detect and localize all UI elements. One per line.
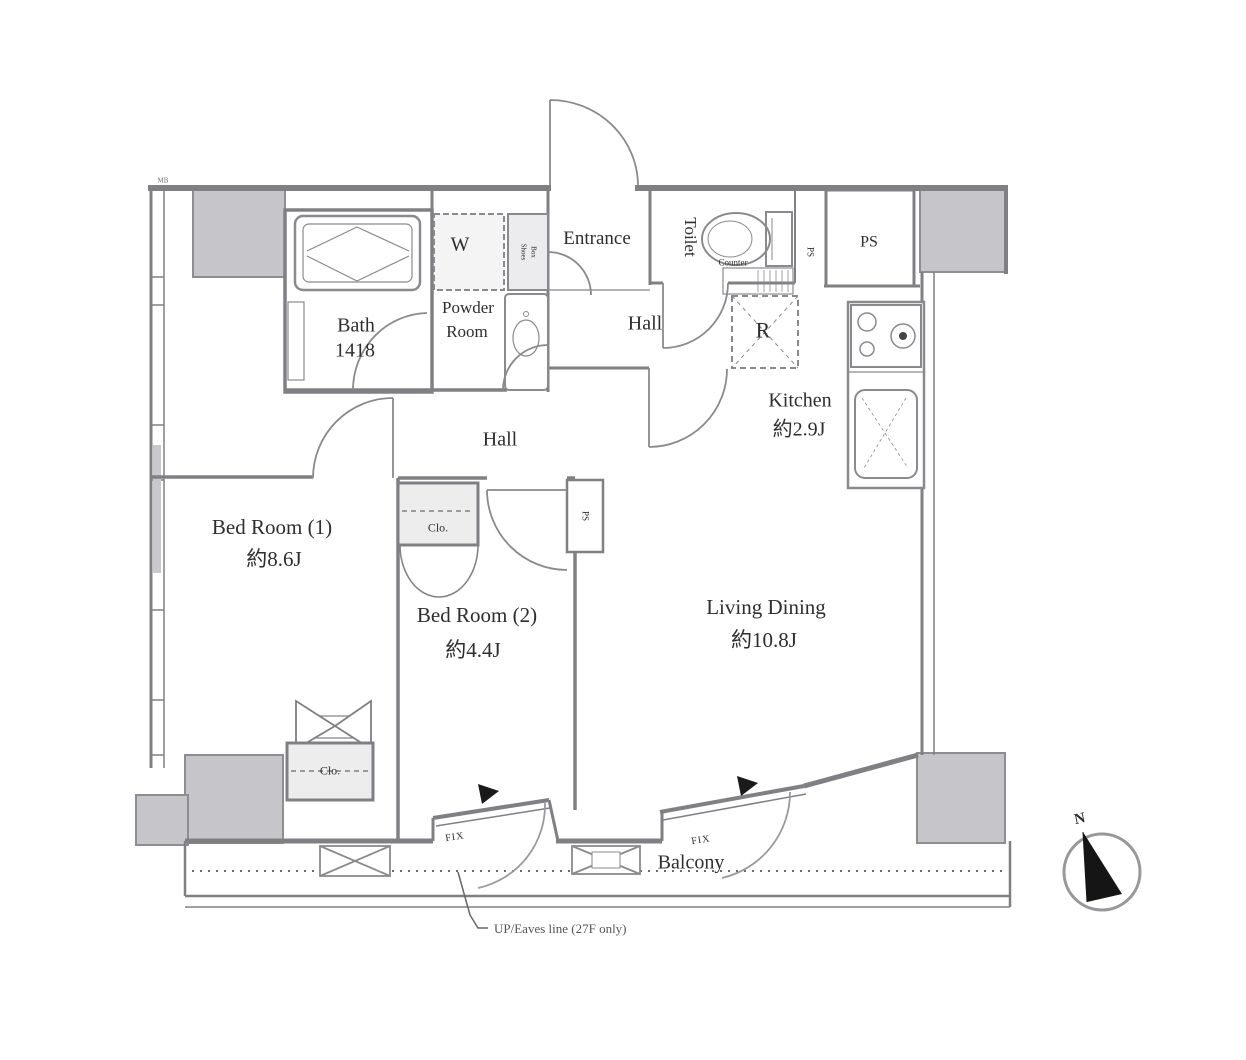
compass-icon [1064, 832, 1140, 910]
toilet-door-arc [663, 283, 728, 348]
refrigerator-label: R [756, 318, 771, 341]
entrance-door-arc [550, 100, 638, 186]
shoes-box-label-2: Box [529, 246, 536, 258]
entrance-inner-arc [548, 252, 591, 295]
washer-label: W [451, 235, 470, 256]
ps-mid-label: PS [580, 511, 589, 521]
shoes-box [508, 214, 548, 290]
hall-upper-label: Hall [628, 314, 662, 335]
kitchen-size-label: 約2.9J [773, 420, 826, 441]
bath-counter-icon [288, 302, 304, 380]
bed-room-1-size-label: 約8.6J [246, 548, 301, 570]
window-frame-shade [153, 445, 161, 573]
toilet-label: Toilet [681, 217, 699, 256]
bed-room-2-size-label: 約4.4J [445, 639, 500, 661]
floor-plan-drawing [0, 0, 1246, 1060]
counter-label: Counter [719, 258, 748, 267]
bed1-door-arc [313, 398, 393, 478]
column-top-left [193, 188, 285, 277]
closet-bed2-door-arcs [400, 545, 478, 597]
living-dining-size-label: 約10.8J [731, 629, 797, 651]
bed2-door-arc [487, 490, 567, 570]
hall-living-door-arc [649, 368, 727, 447]
floor-plan-canvas: MB Bath 1418 W Shoes Box Powder Room Ent… [0, 0, 1246, 1060]
closet-bed2-label: Clo. [428, 522, 448, 535]
hall-lower-label: Hall [483, 430, 517, 451]
balcony-label: Balcony [658, 853, 725, 874]
washbasin-icon [505, 294, 548, 390]
bathtub-icon [295, 216, 420, 290]
living-dining-label: Living Dining [706, 596, 826, 618]
balcony-hatch-right [572, 846, 640, 874]
bath-size-label: 1418 [335, 341, 375, 362]
bath-label: Bath [337, 316, 375, 337]
ps-top-label: PS [860, 235, 878, 252]
entrance-door-opening [551, 183, 635, 192]
balcony-hatch-left [320, 846, 390, 876]
kitchen-label: Kitchen [768, 391, 831, 412]
door-swing-arrow-bed2 [478, 784, 499, 804]
column-bottom-left-step [136, 795, 188, 845]
column-bottom-left [185, 755, 283, 843]
powder-room-label-1: Powder [442, 299, 494, 317]
meter-box-label: MB [158, 177, 169, 184]
bed-room-2-label: Bed Room (2) [417, 604, 537, 626]
entrance-label: Entrance [563, 229, 631, 249]
ps-toilet-label: PS [805, 247, 814, 257]
closet-bed1-label: Clo. [320, 765, 340, 778]
bed-room-1-label: Bed Room (1) [212, 516, 332, 538]
toilet-counter-icon [723, 268, 793, 294]
powder-room-label-2: Room [446, 323, 488, 341]
fix-window-bed2 [433, 800, 549, 818]
eaves-note-label: UP/Eaves line (27F only) [494, 922, 627, 936]
column-top-right [920, 188, 1006, 272]
toilet-door-opening [663, 279, 728, 287]
shoes-box-label-1: Shoes [519, 244, 526, 261]
note-leader-line [458, 872, 488, 928]
closet-bed2-box [398, 483, 478, 545]
bathroom-walls [285, 210, 432, 392]
column-bottom-right [917, 753, 1005, 843]
